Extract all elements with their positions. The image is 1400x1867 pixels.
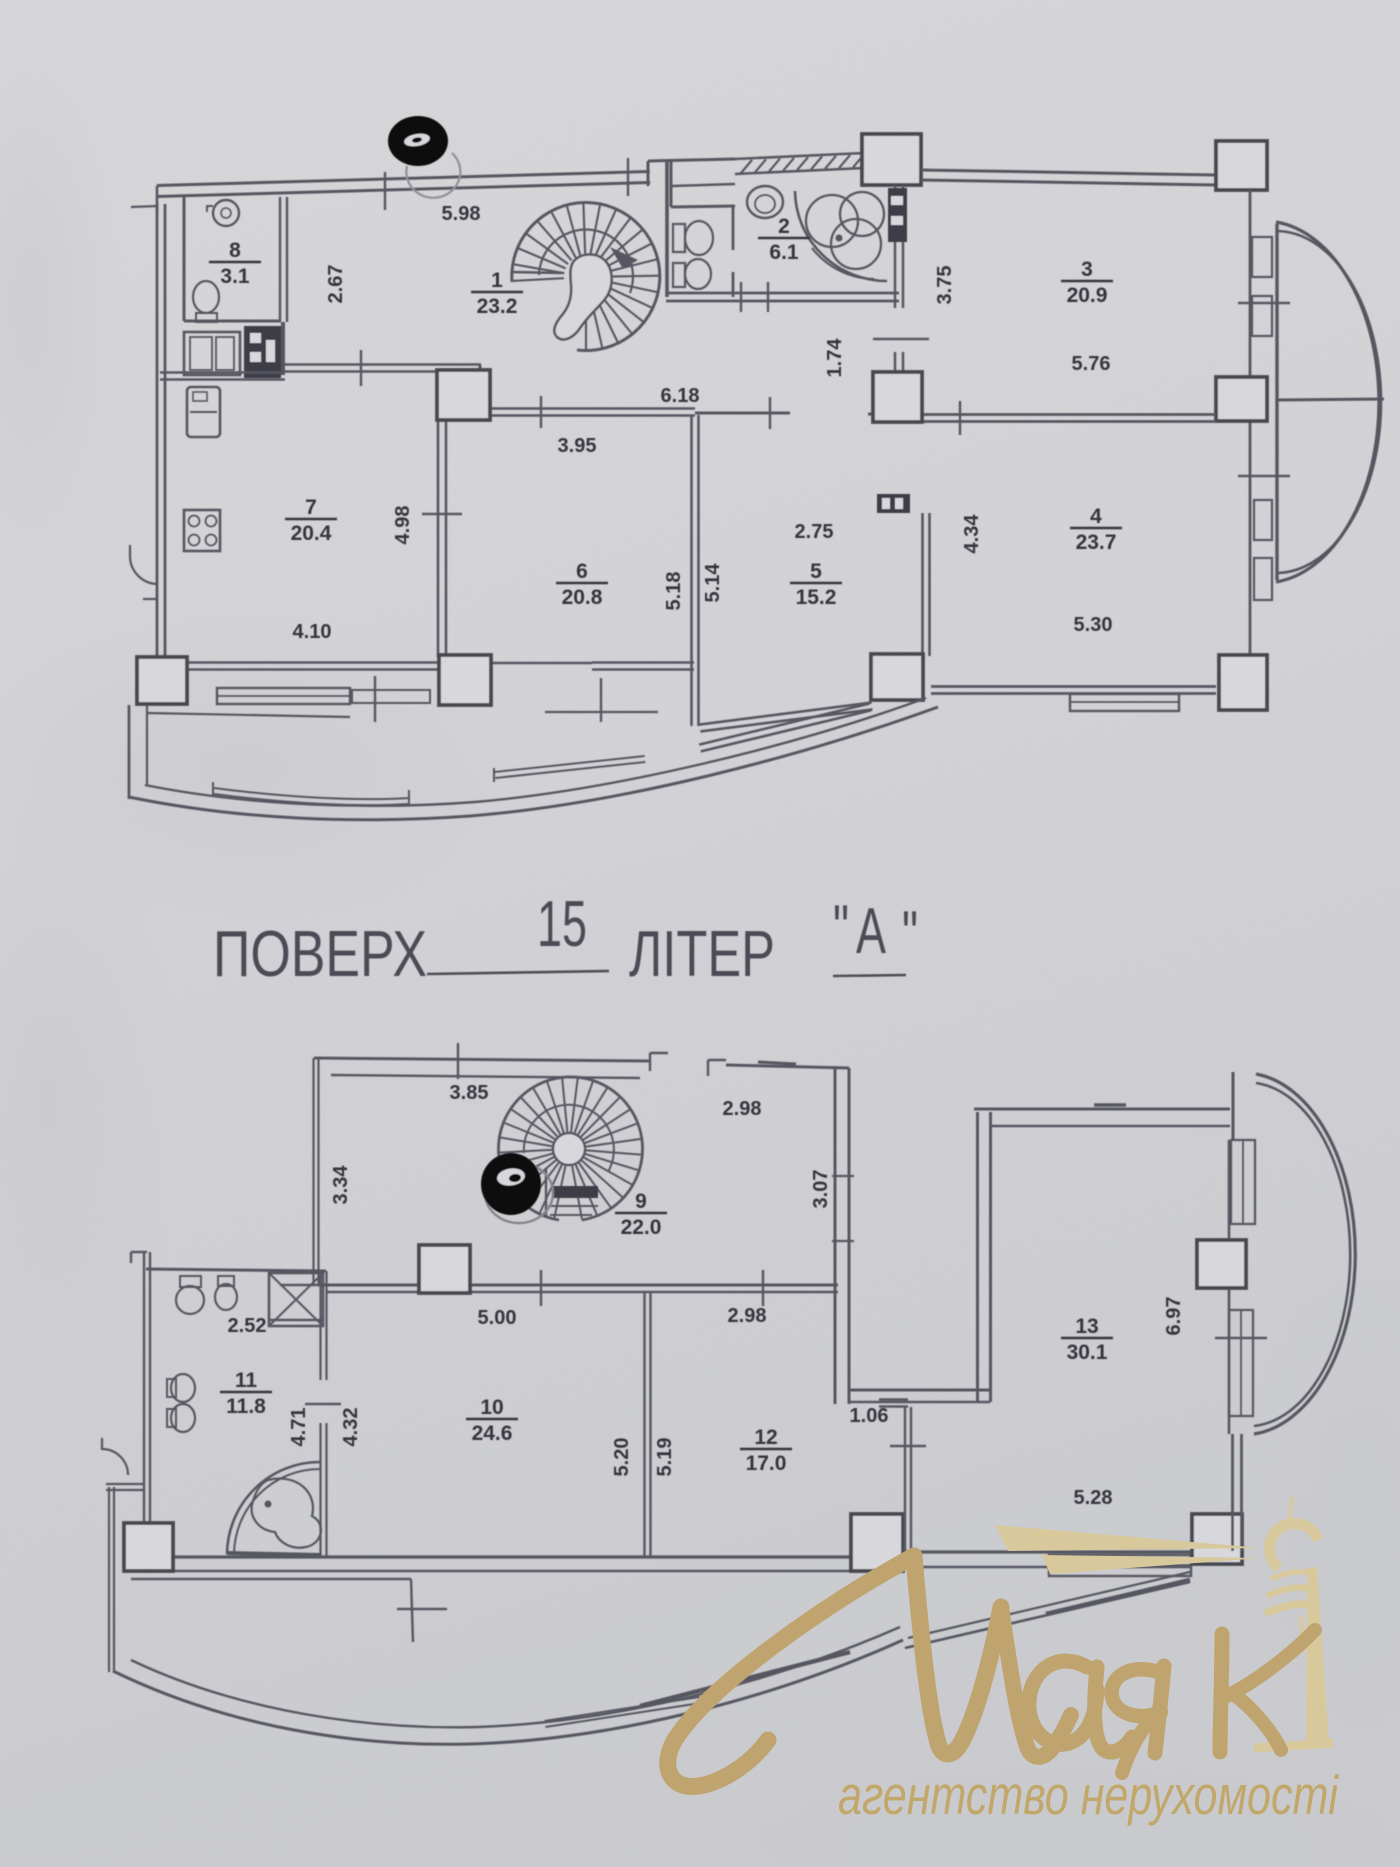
svg-text:ЛІТЕР: ЛІТЕР xyxy=(629,917,775,990)
svg-text:1.74: 1.74 xyxy=(824,338,846,378)
svg-text:4.98: 4.98 xyxy=(392,506,414,545)
svg-text:9: 9 xyxy=(635,1190,647,1213)
svg-text:4.10: 4.10 xyxy=(293,621,332,643)
svg-text:4.71: 4.71 xyxy=(288,1408,310,1447)
svg-text:3.75: 3.75 xyxy=(934,266,956,305)
svg-text:3.34: 3.34 xyxy=(330,1165,352,1205)
svg-text:5: 5 xyxy=(810,560,822,583)
svg-text:5.98: 5.98 xyxy=(442,203,481,225)
svg-text:5.19: 5.19 xyxy=(654,1438,676,1477)
svg-text:17.0: 17.0 xyxy=(746,1452,787,1475)
svg-text:4.32: 4.32 xyxy=(340,1408,362,1447)
svg-text:13: 13 xyxy=(1075,1315,1098,1338)
svg-text:2: 2 xyxy=(778,215,790,238)
svg-text:5.00: 5.00 xyxy=(478,1307,517,1329)
svg-text:22.0: 22.0 xyxy=(621,1216,662,1239)
svg-text:агентство нерухомості: агентство нерухомості xyxy=(838,1764,1339,1826)
svg-text:5.76: 5.76 xyxy=(1072,353,1111,375)
svg-text:6.18: 6.18 xyxy=(661,385,700,407)
svg-text:12: 12 xyxy=(754,1426,777,1449)
svg-text:1.06: 1.06 xyxy=(850,1405,889,1427)
svg-text:1: 1 xyxy=(491,269,503,292)
svg-text:3.1: 3.1 xyxy=(220,265,250,288)
svg-text:20.8: 20.8 xyxy=(562,586,603,609)
svg-text:20.9: 20.9 xyxy=(1067,284,1108,307)
svg-text:20.4: 20.4 xyxy=(291,522,332,545)
svg-text:": " xyxy=(902,897,918,970)
svg-text:6.97: 6.97 xyxy=(1163,1297,1185,1336)
svg-text:2.75: 2.75 xyxy=(795,521,834,543)
svg-text:2.98: 2.98 xyxy=(728,1305,767,1327)
svg-text:15: 15 xyxy=(537,887,587,960)
svg-text:23.2: 23.2 xyxy=(477,295,518,318)
svg-text:5.30: 5.30 xyxy=(1074,614,1113,636)
svg-text:2.52: 2.52 xyxy=(228,1315,267,1337)
svg-text:5.18: 5.18 xyxy=(663,572,685,611)
svg-text:10: 10 xyxy=(480,1396,503,1419)
svg-text:3: 3 xyxy=(1081,258,1093,281)
svg-text:5.14: 5.14 xyxy=(702,563,724,603)
svg-text:11: 11 xyxy=(235,1369,258,1392)
svg-text:15.2: 15.2 xyxy=(796,586,837,609)
svg-text:5.20: 5.20 xyxy=(611,1438,633,1477)
svg-text:23.7: 23.7 xyxy=(1076,531,1117,554)
svg-text:6: 6 xyxy=(576,560,588,583)
svg-text:4.34: 4.34 xyxy=(961,514,983,554)
svg-text:": " xyxy=(833,891,849,964)
svg-text:8: 8 xyxy=(229,239,241,262)
svg-text:5.28: 5.28 xyxy=(1074,1487,1113,1509)
svg-text:24.6: 24.6 xyxy=(472,1422,513,1445)
svg-text:6.1: 6.1 xyxy=(769,241,799,264)
svg-text:4: 4 xyxy=(1090,505,1102,528)
svg-text:2.98: 2.98 xyxy=(723,1098,762,1120)
svg-text:3.85: 3.85 xyxy=(450,1082,489,1104)
svg-text:ПОВЕРХ: ПОВЕРХ xyxy=(213,917,427,990)
svg-text:3.07: 3.07 xyxy=(810,1170,832,1209)
svg-text:11.8: 11.8 xyxy=(226,1395,266,1418)
svg-text:7: 7 xyxy=(305,496,317,519)
svg-text:30.1: 30.1 xyxy=(1067,1341,1108,1364)
svg-text:2.67: 2.67 xyxy=(325,265,347,304)
svg-text:А: А xyxy=(856,894,886,967)
svg-text:3.95: 3.95 xyxy=(558,435,597,457)
